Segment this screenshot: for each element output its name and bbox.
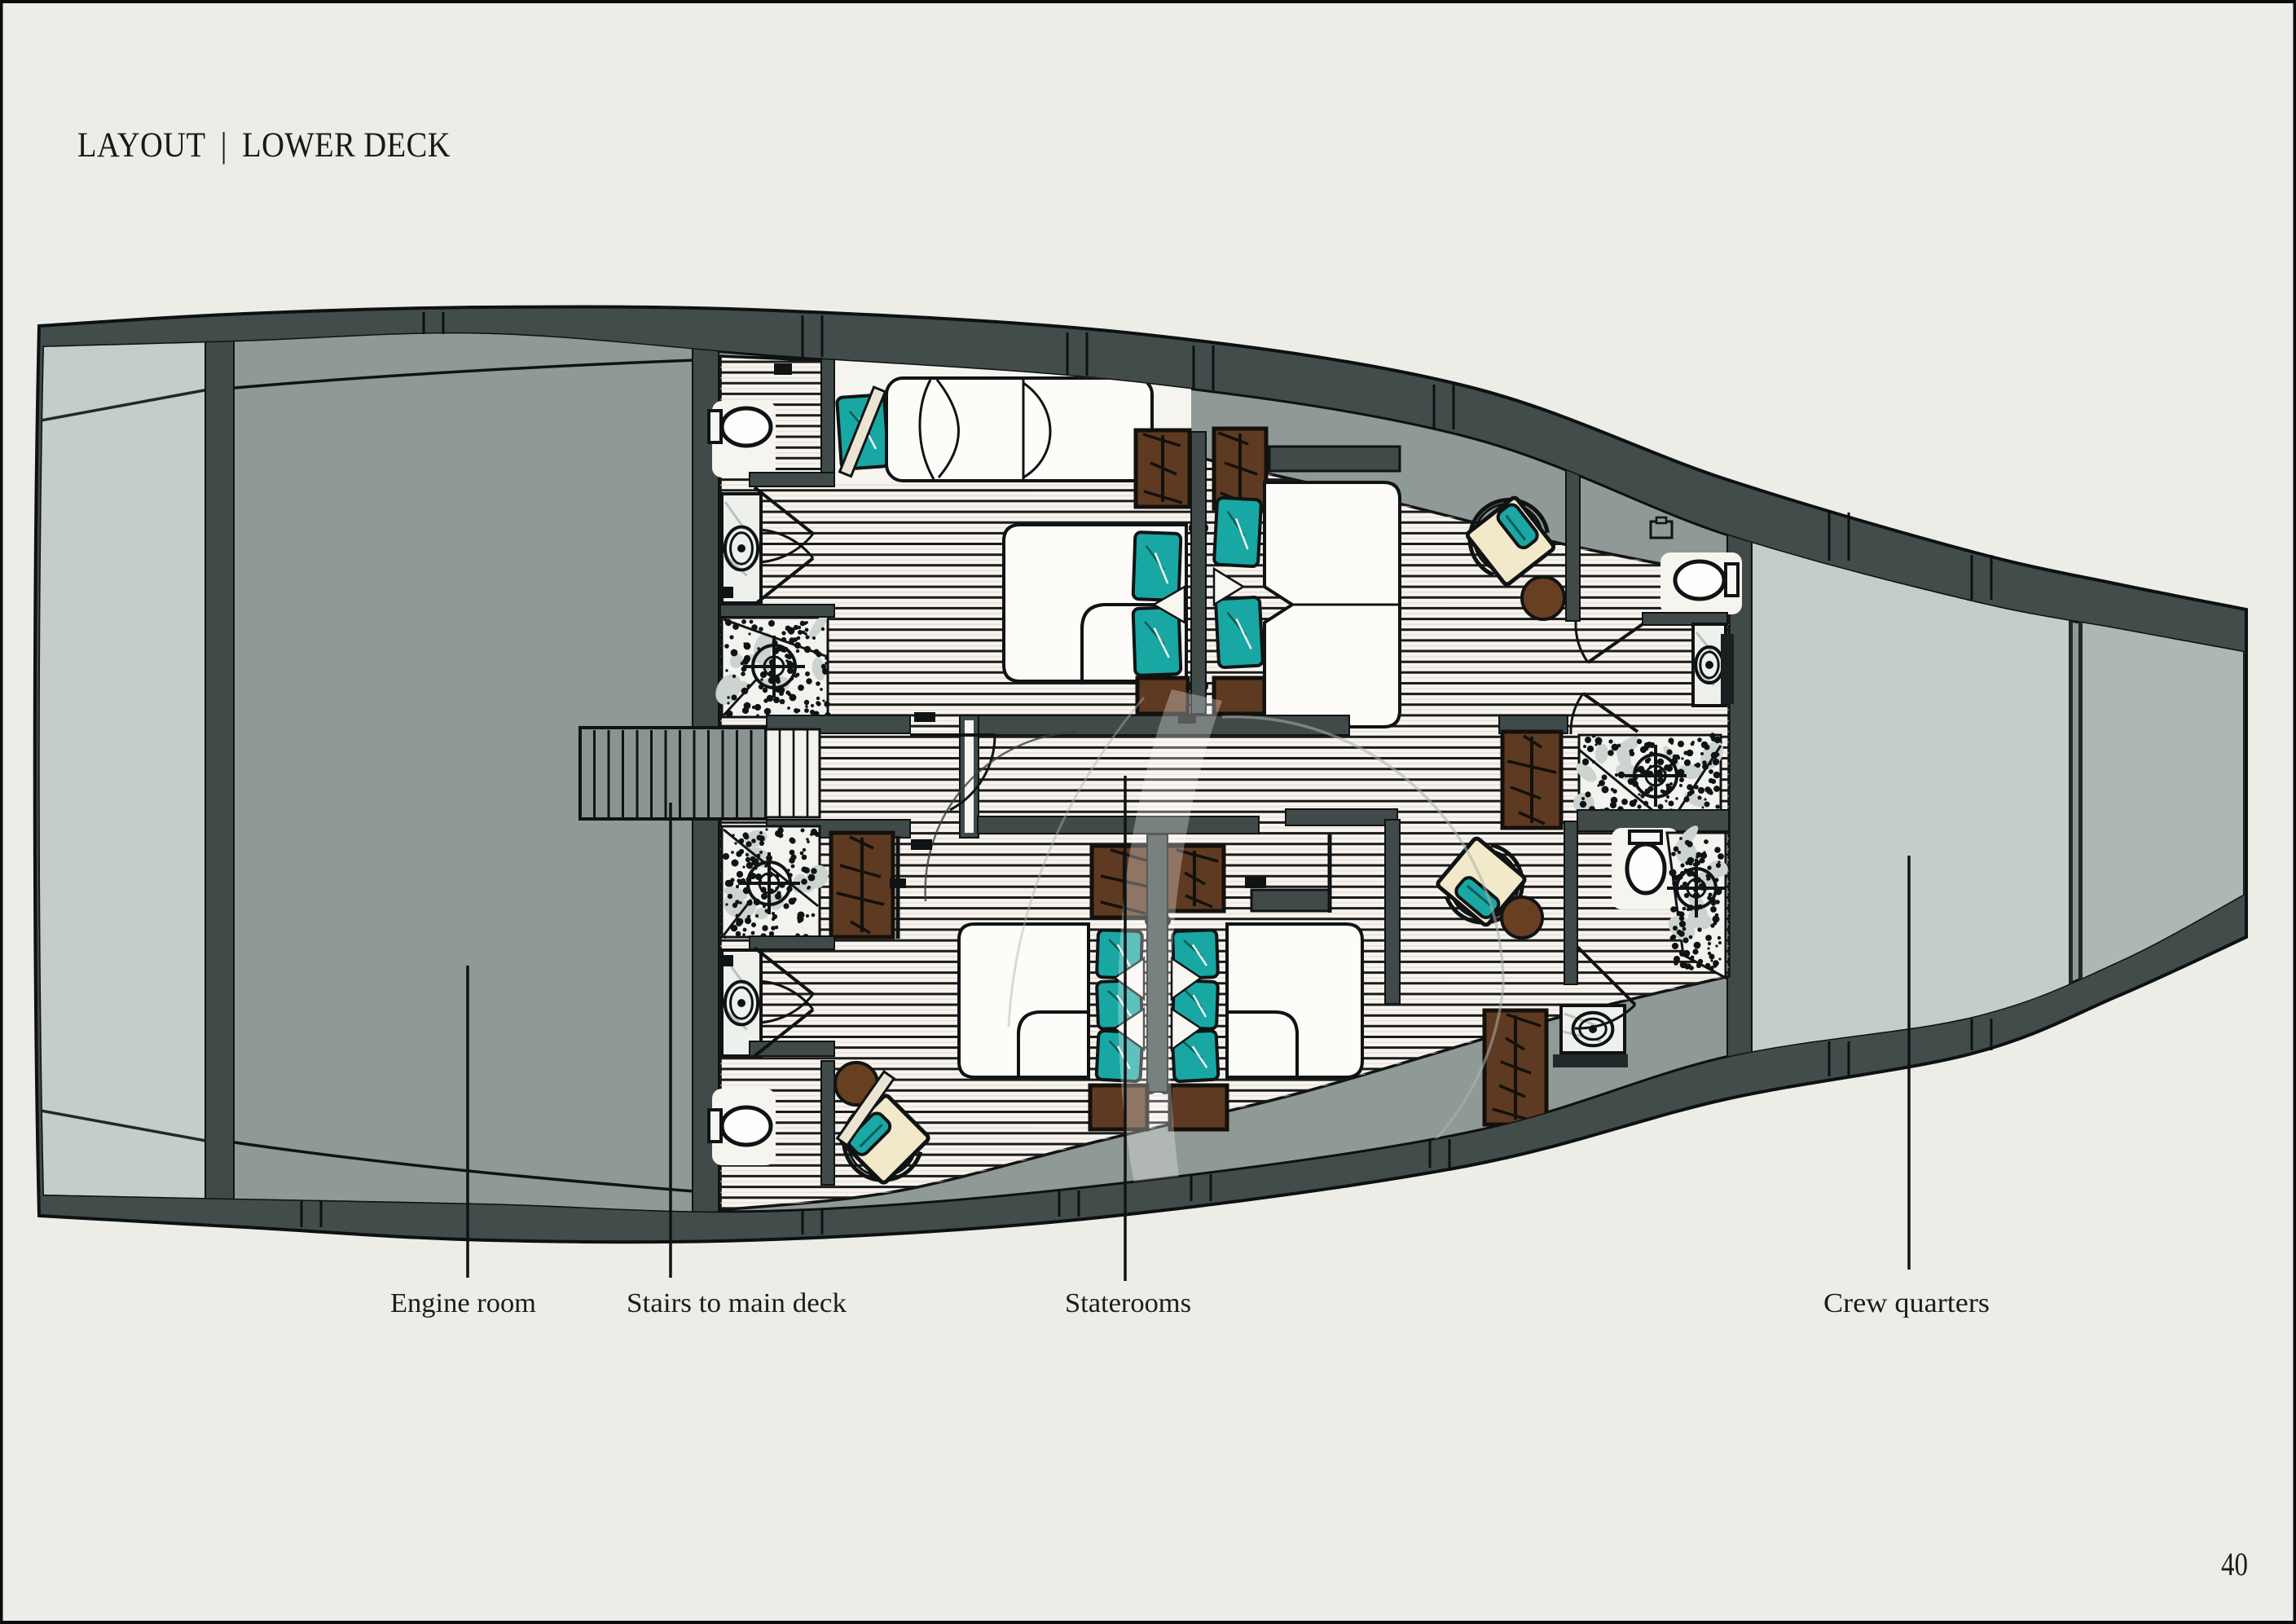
svg-text:40: 40 bbox=[2221, 1546, 2248, 1582]
svg-text:Stairs to main deck: Stairs to main deck bbox=[627, 1288, 847, 1318]
svg-text:Crew quarters: Crew quarters bbox=[1823, 1288, 1990, 1318]
svg-text:LAYOUT | LOWER DECK: LAYOUT | LOWER DECK bbox=[77, 126, 451, 165]
svg-text:Staterooms: Staterooms bbox=[1065, 1288, 1191, 1318]
svg-text:Engine room: Engine room bbox=[390, 1288, 536, 1318]
